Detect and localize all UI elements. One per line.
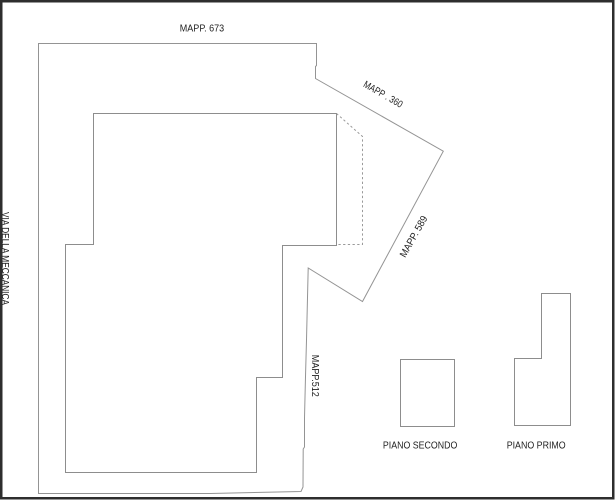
svg-text:PIANO SECONDO: PIANO SECONDO: [383, 441, 458, 452]
svg-text:MAPP. 673: MAPP. 673: [180, 24, 225, 35]
svg-text:MAPP.512: MAPP.512: [309, 355, 320, 397]
svg-text:PIANO PRIMO: PIANO PRIMO: [507, 441, 566, 452]
svg-text:VIA DELLA MECCANICA: VIA DELLA MECCANICA: [0, 212, 10, 305]
